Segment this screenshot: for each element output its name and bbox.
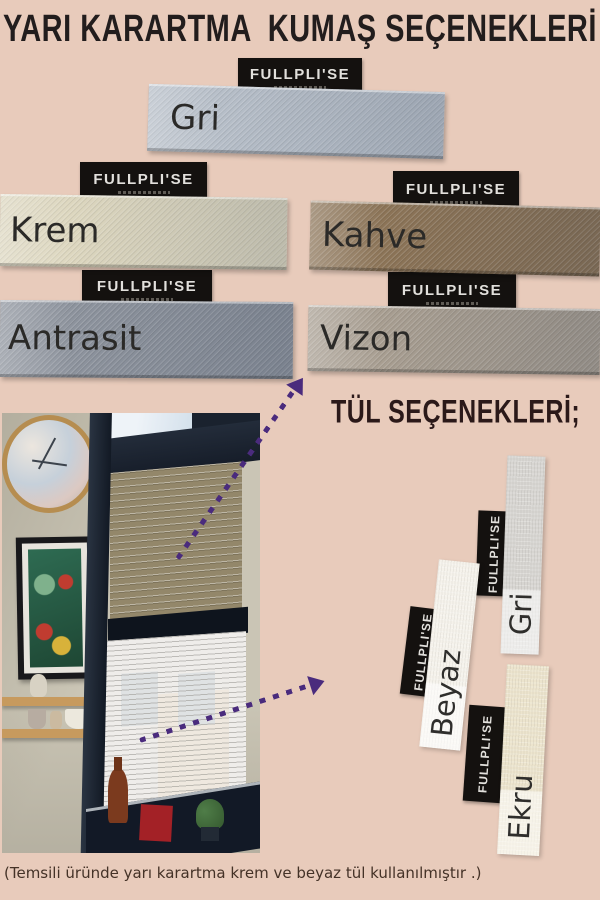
tulle-label-ekru: Ekru	[502, 773, 539, 840]
product-photo	[2, 413, 260, 853]
arrowhead-icon	[307, 672, 327, 696]
photo-decor-bottle	[108, 769, 128, 823]
fabric-swatch-vizon: Vizon	[308, 305, 600, 375]
fabric-label-krem: Krem	[0, 209, 100, 250]
tulle-section-heading: Tül Seçenekleri;	[331, 394, 580, 432]
brand-label: FULLPLI'SE	[406, 181, 506, 198]
fabric-label-antrasit: Antrasit	[0, 318, 142, 359]
tulle-swatch-gri: Gri	[501, 455, 546, 654]
photo-framed-art	[16, 536, 95, 679]
brand-tag-subline	[426, 302, 478, 305]
fabric-swatch-kahve: Kahve	[309, 200, 600, 276]
tulle-label-gri: Gri	[503, 592, 538, 636]
photo-decor-plant	[196, 799, 224, 829]
photo-wall-clock	[2, 415, 96, 513]
fabric-swatch-krem: Krem	[0, 194, 287, 270]
brand-tag-subline	[118, 191, 170, 194]
brand-label: FULLPLI'SE	[475, 715, 494, 794]
brand-label: FULLPLI'SE	[250, 66, 350, 83]
brand-label: FULLPLI'SE	[97, 278, 197, 295]
fabric-label-gri: Gri	[148, 97, 221, 139]
photo-pleated-blind-top	[110, 461, 242, 625]
fabric-label-vizon: Vizon	[308, 317, 413, 358]
photo-decor-box	[139, 804, 173, 842]
page-title: Yarı Karartma Kumaş Seçenekleri	[0, 8, 600, 52]
brand-label: FULLPLI'SE	[402, 282, 502, 299]
fabric-swatch-gri: Gri	[147, 84, 445, 159]
fabric-swatch-antrasit: Antrasit	[0, 300, 293, 379]
tulle-swatch-ekru: Ekru	[497, 664, 549, 856]
poster: Yarı Karartma Kumaş Seçenekleri FULLPLI'…	[0, 0, 600, 900]
fabric-label-kahve: Kahve	[310, 214, 428, 257]
footnote: (Temsili üründe yarı karartma krem ve be…	[4, 864, 481, 882]
brand-label: FULLPLI'SE	[93, 171, 193, 188]
brand-label: FULLPLI'SE	[486, 514, 503, 593]
